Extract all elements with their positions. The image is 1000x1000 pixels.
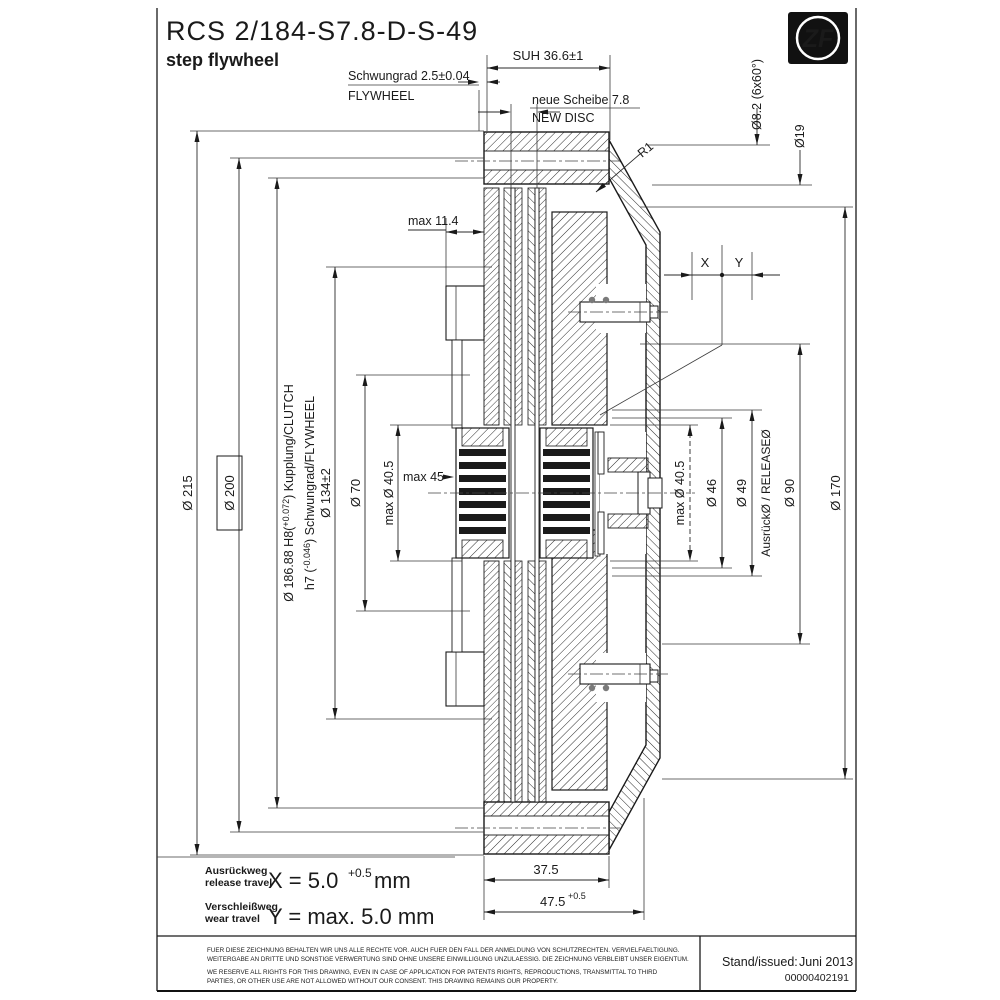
title-block-top: RCS 2/184-S7.8-D-S-49 step flywheel <box>166 16 478 70</box>
issued-label: Stand/issued: <box>722 955 798 969</box>
dim-w475: 47.5 <box>540 894 565 909</box>
footer: FUER DIESE ZEICHNUNG BEHALTEN WIR UNS AL… <box>207 947 853 985</box>
dim-d18688: Ø 186.88 H8(+0.072) Kupplung/CLUTCH <box>281 384 296 601</box>
drawing-page: RCS 2/184-S7.8-D-S-49 step flywheel ZF <box>0 0 1000 1000</box>
dim-w375: 37.5 <box>533 862 558 877</box>
release-travel-tol: +0.5 <box>348 866 372 880</box>
dim-w475-tol: +0.5 <box>568 891 586 901</box>
dim-d49: Ø 49 <box>734 479 749 507</box>
release-travel-label-en: release travel <box>205 877 272 889</box>
footer-notice-de-2: WEITERGABE AN DRITTE UND SONSTIGE VERWER… <box>207 956 689 963</box>
dim-h7: h7 (-0.046) Schwungrad/FLYWHEEL <box>302 396 317 590</box>
dim-hole-pattern: Ø8.2 (6x60°) <box>750 59 764 130</box>
dim-d170: Ø 170 <box>828 475 843 510</box>
issue-block: Stand/issued: Juni 2013 00000402191 <box>722 955 853 984</box>
footer-notice-en-1: WE RESERVE ALL RIGHTS FOR THIS DRAWING, … <box>207 969 658 976</box>
dim-flywheel-de: Schwungrad 2.5±0.04 <box>348 69 470 83</box>
footer-notice-de-1: FUER DIESE ZEICHNUNG BEHALTEN WIR UNS AL… <box>207 947 680 954</box>
wear-travel-value: Y = max. 5.0 mm <box>268 904 434 929</box>
zf-logo-icon: ZF <box>788 12 848 64</box>
dim-flywheel-en: FLYWHEEL <box>348 89 414 103</box>
dim-max-d405-left: max Ø 40.5 <box>382 461 396 526</box>
dim-suh: SUH 36.6±1 <box>513 48 584 63</box>
dim-new-disc-en: NEW DISC <box>532 111 595 125</box>
technical-drawing: RCS 2/184-S7.8-D-S-49 step flywheel ZF <box>0 0 1000 1000</box>
dim-d134: Ø 134±2 <box>318 468 333 518</box>
dim-y-label: Y <box>735 255 744 270</box>
dim-d90: Ø 90 <box>782 479 797 507</box>
footer-notice-en-2: PARTIES, OR OTHER USE ARE NOT ALLOWED WI… <box>207 978 558 985</box>
release-travel-value: X = 5.0 <box>268 868 338 893</box>
dim-d215: Ø 215 <box>180 475 195 510</box>
wear-travel-label-en: wear travel <box>204 913 260 925</box>
travel-table: Ausrückweg release travel X = 5.0 +0.5 m… <box>204 865 434 929</box>
dim-max-d405-right: max Ø 40.5 <box>673 461 687 526</box>
issued-value: Juni 2013 <box>799 955 853 969</box>
page-title: RCS 2/184-S7.8-D-S-49 <box>166 16 478 46</box>
release-travel-unit: mm <box>374 868 411 893</box>
zf-logo-text: ZF <box>802 25 834 53</box>
dim-d19: Ø19 <box>793 124 807 148</box>
dim-max-45: max 45 <box>403 470 444 484</box>
page-subtitle: step flywheel <box>166 50 279 70</box>
dim-new-disc-de: neue Scheibe 7.8 <box>532 93 629 107</box>
driven-plates <box>511 188 539 802</box>
clutch-cross-section <box>428 132 695 854</box>
dim-max-114: max 11.4 <box>408 214 459 228</box>
dim-d70: Ø 70 <box>348 479 363 507</box>
dim-x-label: X <box>701 255 710 270</box>
dim-d46: Ø 46 <box>704 479 719 507</box>
release-travel-label-de: Ausrückweg <box>205 865 267 877</box>
wear-travel-label-de: Verschleißweg <box>205 901 278 913</box>
dim-release-dia: AusrückØ / RELEASEØ <box>759 429 773 556</box>
flywheel-ring-bottom <box>455 802 620 854</box>
dim-r1: R1 <box>635 139 656 160</box>
doc-number: 00000402191 <box>785 972 849 984</box>
dim-d200: Ø 200 <box>222 475 237 510</box>
